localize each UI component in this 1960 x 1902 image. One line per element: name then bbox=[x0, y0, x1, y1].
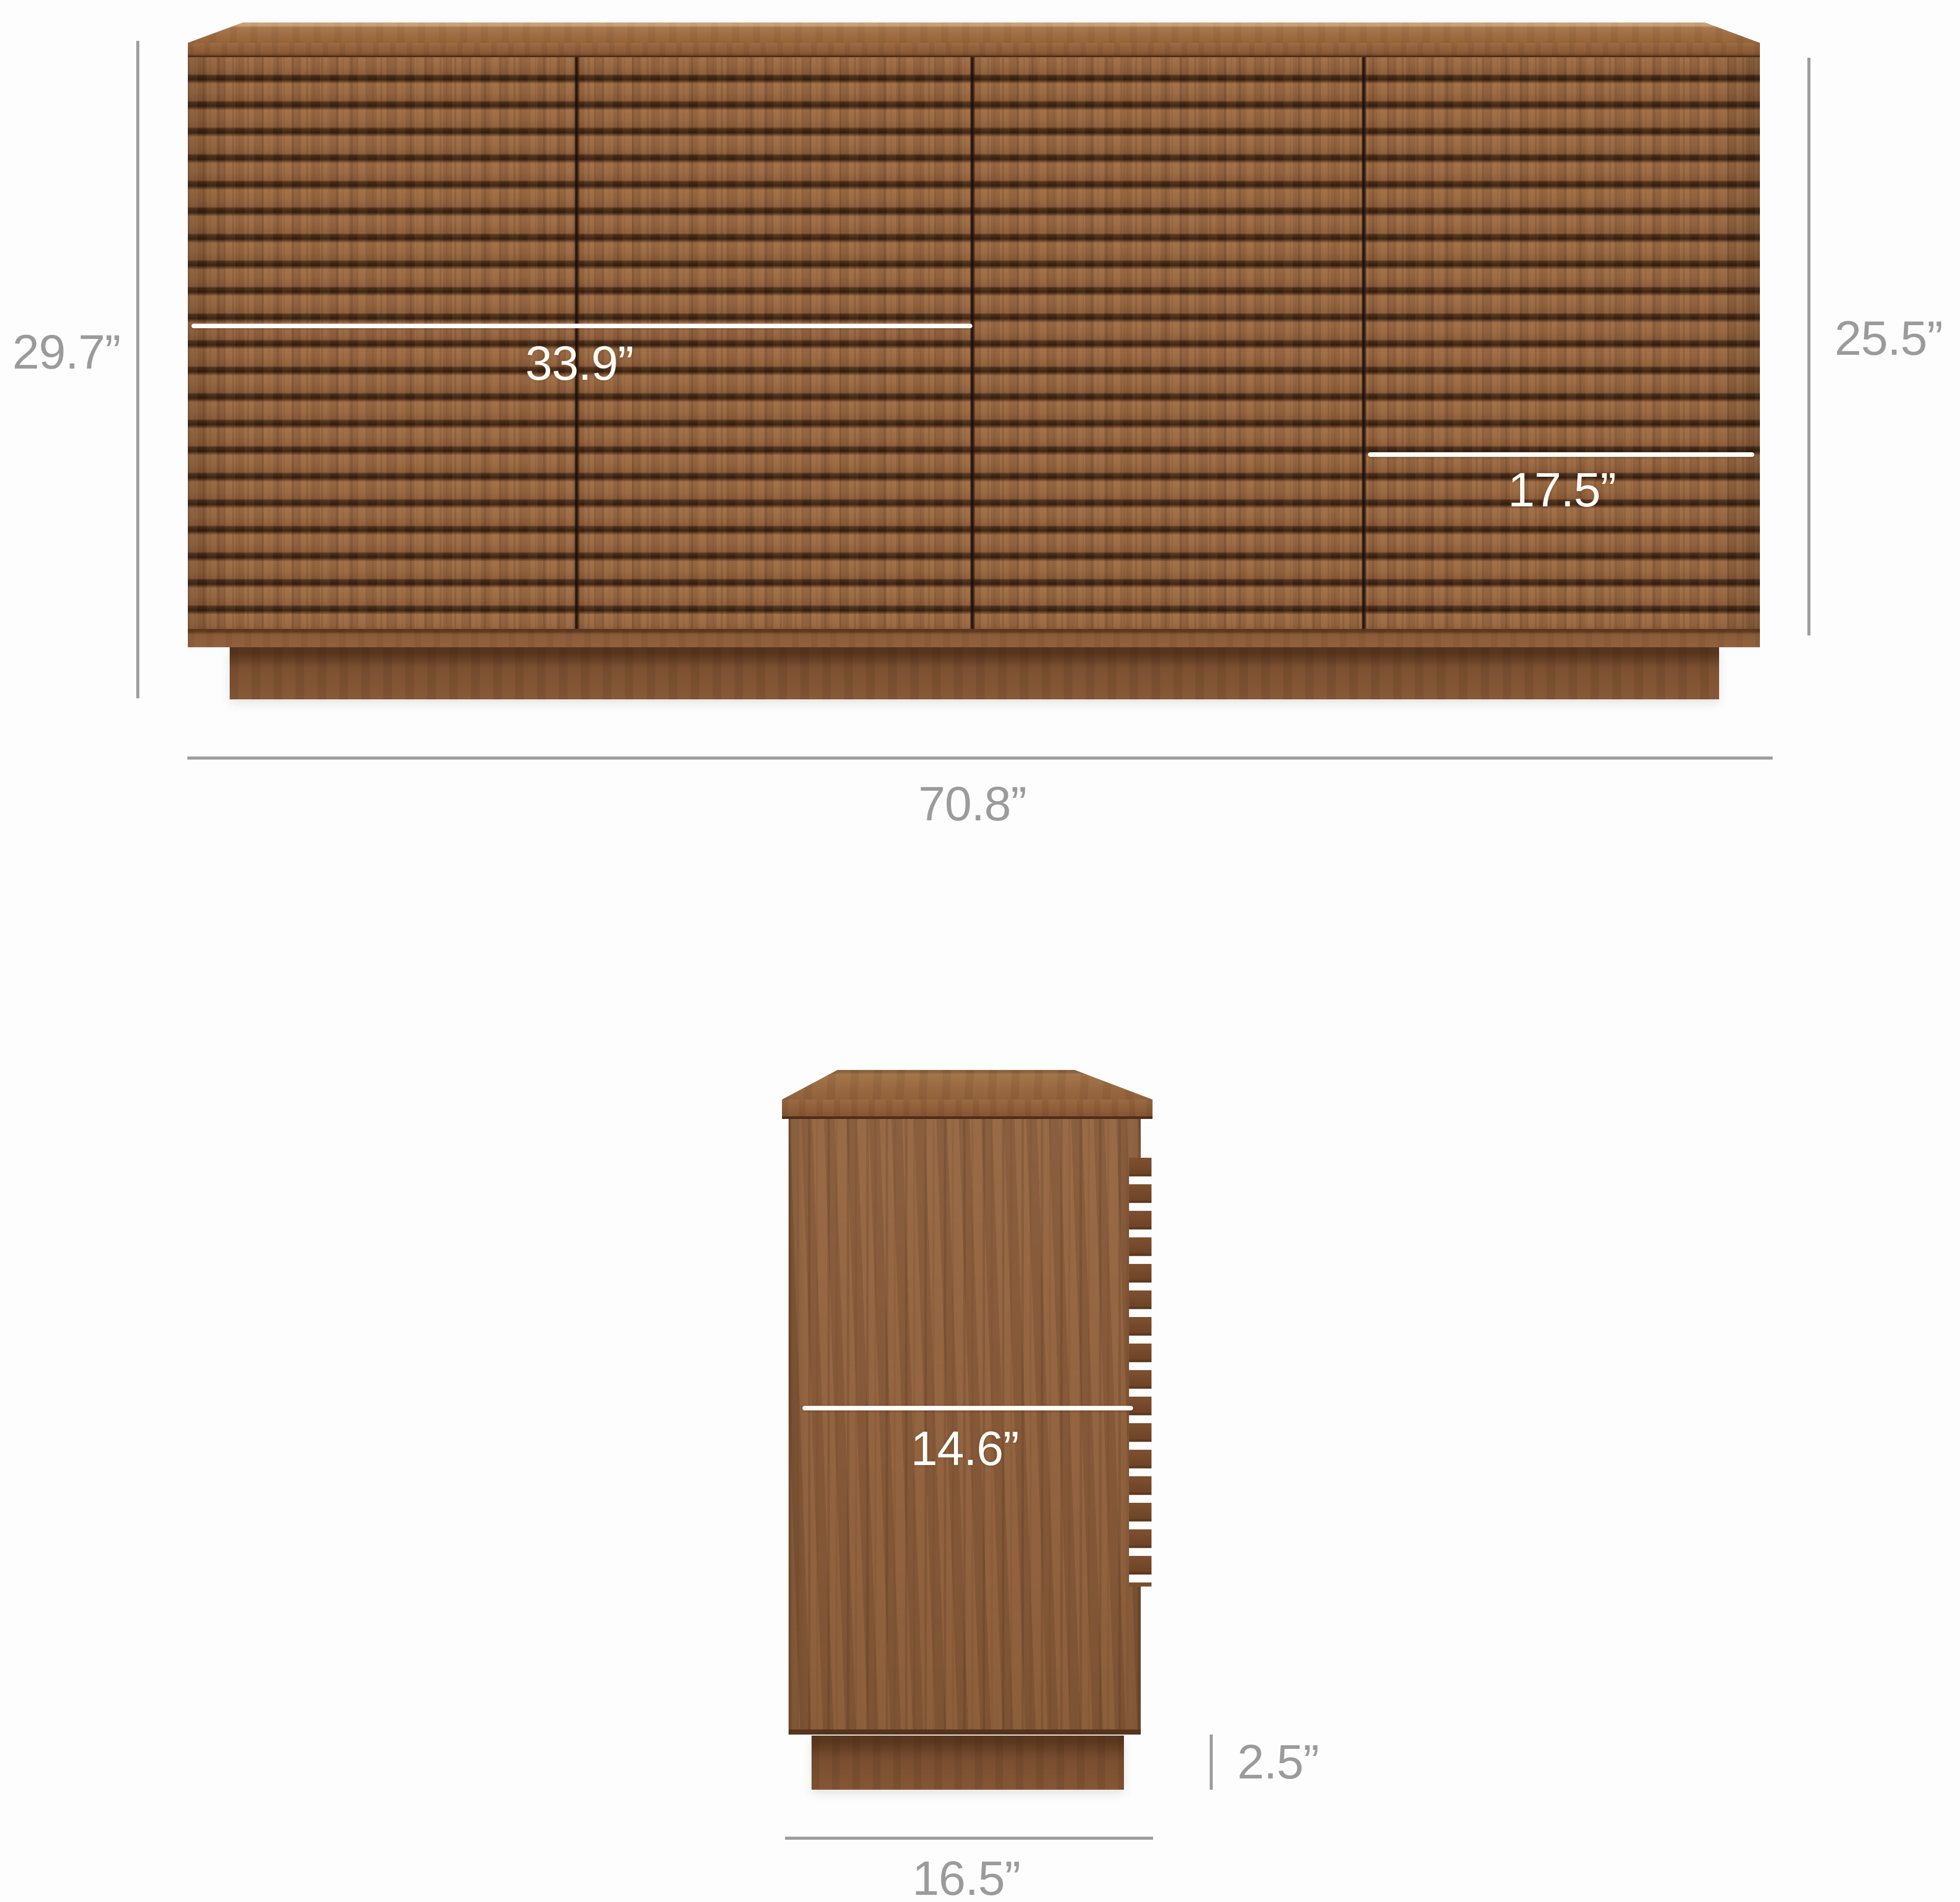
interior-depth-label: 14.6” bbox=[891, 1425, 1039, 1473]
plinth-height-label: 2.5” bbox=[1237, 1738, 1350, 1787]
side-view: 14.6” 2.5” 16.5” bbox=[0, 0, 1960, 1902]
side-top-edge bbox=[782, 1100, 1153, 1119]
side-plinth-base bbox=[812, 1736, 1124, 1790]
side-top-surface bbox=[782, 1070, 1153, 1100]
side-slat-serrated-edge bbox=[1129, 1158, 1151, 1587]
interior-depth-measure-line bbox=[802, 1406, 1133, 1410]
overall-depth-label: 16.5” bbox=[892, 1855, 1040, 1902]
plinth-height-dimension-tick bbox=[1210, 1735, 1213, 1790]
overall-depth-dimension-line bbox=[785, 1837, 1153, 1840]
dimension-diagram: 29.7” 25.5” 70.8” 33.9” 17.5” 14.6” 2.5”… bbox=[0, 0, 1960, 1902]
